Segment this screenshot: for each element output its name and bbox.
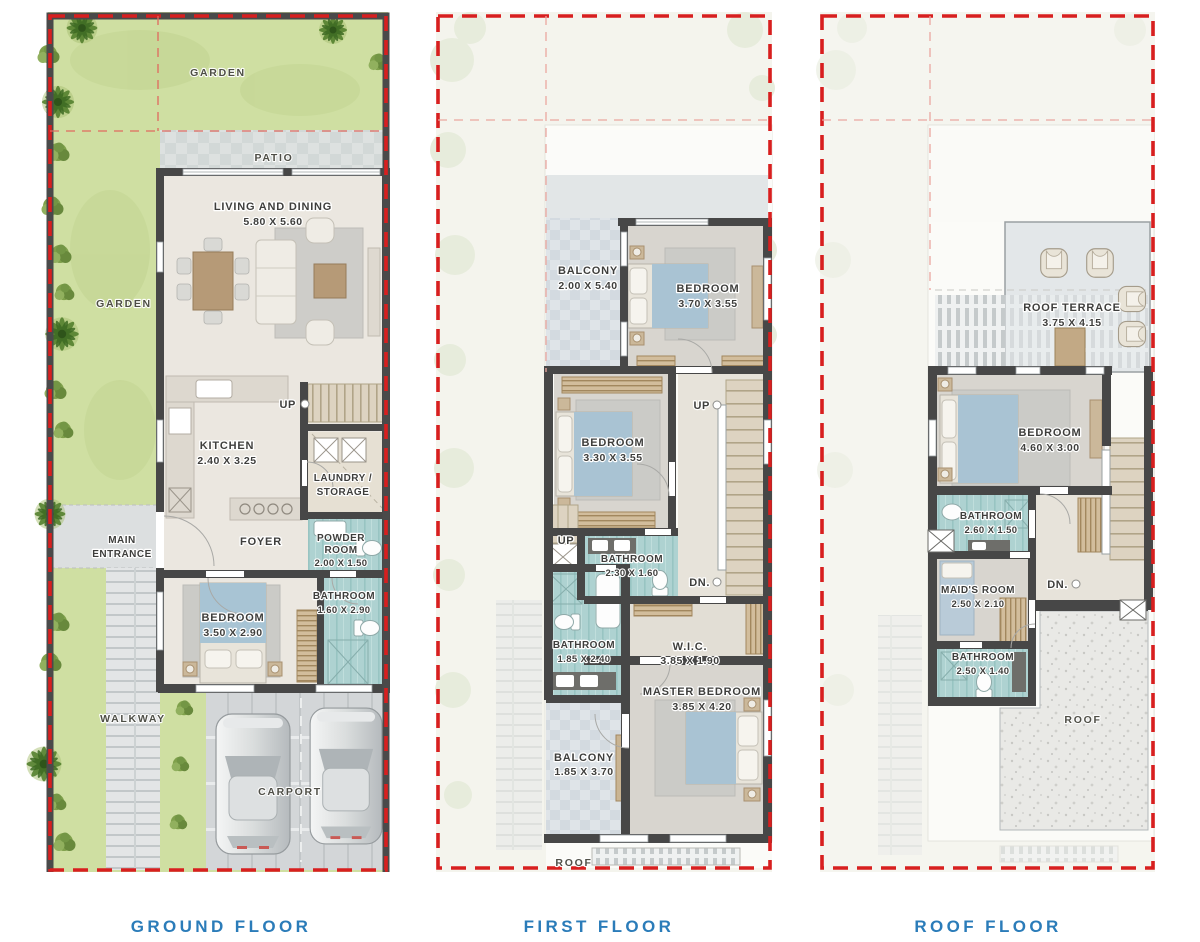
first-floor-plan: BALCONY 2.00 X 5.40 BEDROOM 3.70 X 3.55 … bbox=[430, 12, 777, 872]
floor-plan-canvas: GARDEN GARDEN PATIO LIVING AND DINING 5.… bbox=[0, 0, 1200, 942]
first-floor-caption: FIRST FLOOR bbox=[524, 917, 675, 936]
powder-room-label-1: POWDER bbox=[317, 533, 365, 544]
first-roof-label: ROOF bbox=[555, 857, 592, 869]
living-dining-label: LIVING AND DINING bbox=[214, 201, 332, 213]
master-bedroom-label: MASTER BEDROOM bbox=[643, 686, 761, 698]
patio-label: PATIO bbox=[254, 152, 293, 164]
wic-dims: 3.85 X 1.90 bbox=[660, 655, 719, 667]
walkway-label: WALKWAY bbox=[100, 713, 166, 725]
ground-bathroom-label: BATHROOM bbox=[313, 591, 375, 602]
roof-bathroom2-dims: 2.50 X 1.40 bbox=[957, 666, 1010, 677]
main-entrance-label-2: ENTRANCE bbox=[92, 549, 152, 560]
ground-floor-caption: GROUND FLOOR bbox=[131, 917, 312, 936]
foyer-label: FOYER bbox=[240, 536, 282, 548]
ground-bedroom-label: BEDROOM bbox=[201, 612, 264, 624]
main-entrance-label-1: MAIN bbox=[108, 535, 136, 546]
ground-stairs bbox=[308, 384, 386, 422]
roof-hall-closet bbox=[1078, 498, 1102, 552]
ground-up-label: UP bbox=[280, 399, 296, 411]
roof-bathroom1-label: BATHROOM bbox=[960, 511, 1022, 522]
powder-room-dims: 2.00 X 1.50 bbox=[315, 558, 368, 569]
roof-terrace-dims: 3.75 X 4.15 bbox=[1042, 317, 1101, 329]
first-down-label: DN. bbox=[689, 577, 710, 589]
roof-bedroom-label: BEDROOM bbox=[1018, 427, 1081, 439]
garden-top-label: GARDEN bbox=[190, 67, 246, 79]
wic-label: W.I.C. bbox=[673, 641, 708, 653]
roof-down-label: DN. bbox=[1047, 579, 1068, 591]
first-bathroom1-dims: 2.30 X 1.60 bbox=[606, 568, 659, 579]
balcony2-label: BALCONY bbox=[554, 752, 614, 764]
roof-floor-caption: ROOF FLOOR bbox=[914, 917, 1061, 936]
first-ghost-walkway bbox=[496, 600, 542, 850]
first-bathroom2-dims: 1.85 X 2.40 bbox=[558, 654, 611, 665]
car-2 bbox=[310, 708, 382, 844]
bedroom1-dims: 3.70 X 3.55 bbox=[678, 298, 737, 310]
roof-bathroom1-dims: 2.60 X 1.50 bbox=[965, 525, 1018, 536]
roof-terrace-label: ROOF TERRACE bbox=[1023, 302, 1121, 314]
balcony1-label: BALCONY bbox=[558, 265, 618, 277]
kitchen-label: KITCHEN bbox=[200, 440, 255, 452]
first-stair-rail bbox=[718, 405, 726, 570]
car-1 bbox=[216, 714, 290, 854]
kitchen-dims: 2.40 X 3.25 bbox=[197, 455, 256, 467]
ground-up-marker bbox=[301, 400, 309, 408]
roof-floor-plan: ROOF TERRACE 3.75 X 4.15 BEDROOM 4.60 X … bbox=[815, 12, 1155, 872]
powder-room-label-2: ROOM bbox=[324, 545, 357, 556]
patio-floor bbox=[160, 130, 388, 172]
roof-down-marker bbox=[1072, 580, 1080, 588]
ground-floor-plan: GARDEN GARDEN PATIO LIVING AND DINING 5.… bbox=[27, 12, 391, 872]
roof-stair-rail bbox=[1102, 450, 1110, 554]
first-bathroom2-label: BATHROOM bbox=[553, 640, 615, 651]
ground-bathroom-dims: 1.60 X 2.90 bbox=[318, 605, 371, 616]
first-stairs bbox=[726, 380, 764, 595]
bedroom2-label: BEDROOM bbox=[581, 437, 644, 449]
balcony1-upper-floor bbox=[546, 175, 768, 218]
laundry-label-1: LAUNDRY / bbox=[314, 473, 372, 484]
balcony1-floor bbox=[546, 218, 622, 372]
first-roof-vent bbox=[592, 848, 740, 865]
carport-label: CARPORT bbox=[258, 786, 322, 798]
first-up-steps-label: UP bbox=[558, 535, 574, 547]
first-down-marker bbox=[713, 578, 721, 586]
roof-bathroom2-label: BATHROOM bbox=[952, 652, 1014, 663]
floor-plan-sheet: GARDEN GARDEN PATIO LIVING AND DINING 5.… bbox=[0, 0, 1200, 942]
living-dining-dims: 5.80 X 5.60 bbox=[243, 216, 302, 228]
bedroom1-label: BEDROOM bbox=[676, 283, 739, 295]
roof-area-label: ROOF bbox=[1064, 714, 1101, 726]
pergola-slats-left bbox=[935, 295, 1005, 368]
laundry-label-2: STORAGE bbox=[317, 487, 370, 498]
roof-edge-band bbox=[930, 130, 1154, 222]
bathroom-toilet bbox=[354, 620, 380, 636]
first-bathroom1-label: BATHROOM bbox=[601, 554, 663, 565]
garden-left-label: GARDEN bbox=[96, 298, 152, 310]
roof-bedroom-dims: 4.60 X 3.00 bbox=[1020, 442, 1079, 454]
first-up-label: UP bbox=[694, 400, 710, 412]
roof-stairs bbox=[1110, 438, 1148, 560]
first-up-marker bbox=[713, 401, 721, 409]
carport-green-strip bbox=[160, 690, 206, 870]
master-bedroom-dims: 3.85 X 4.20 bbox=[672, 701, 731, 713]
maids-room-dims: 2.50 X 2.10 bbox=[952, 599, 1005, 610]
roof-ghost-vent bbox=[1000, 846, 1118, 862]
roof-ghost-walkway bbox=[878, 615, 922, 855]
bedroom2-dims: 3.30 X 3.55 bbox=[583, 452, 642, 464]
balcony1-dims: 2.00 X 5.40 bbox=[558, 280, 617, 292]
ground-bedroom-dims: 3.50 X 2.90 bbox=[203, 627, 262, 639]
balcony2-dims: 1.85 X 3.70 bbox=[554, 766, 613, 778]
maids-room-label: MAID'S ROOM bbox=[941, 585, 1015, 596]
